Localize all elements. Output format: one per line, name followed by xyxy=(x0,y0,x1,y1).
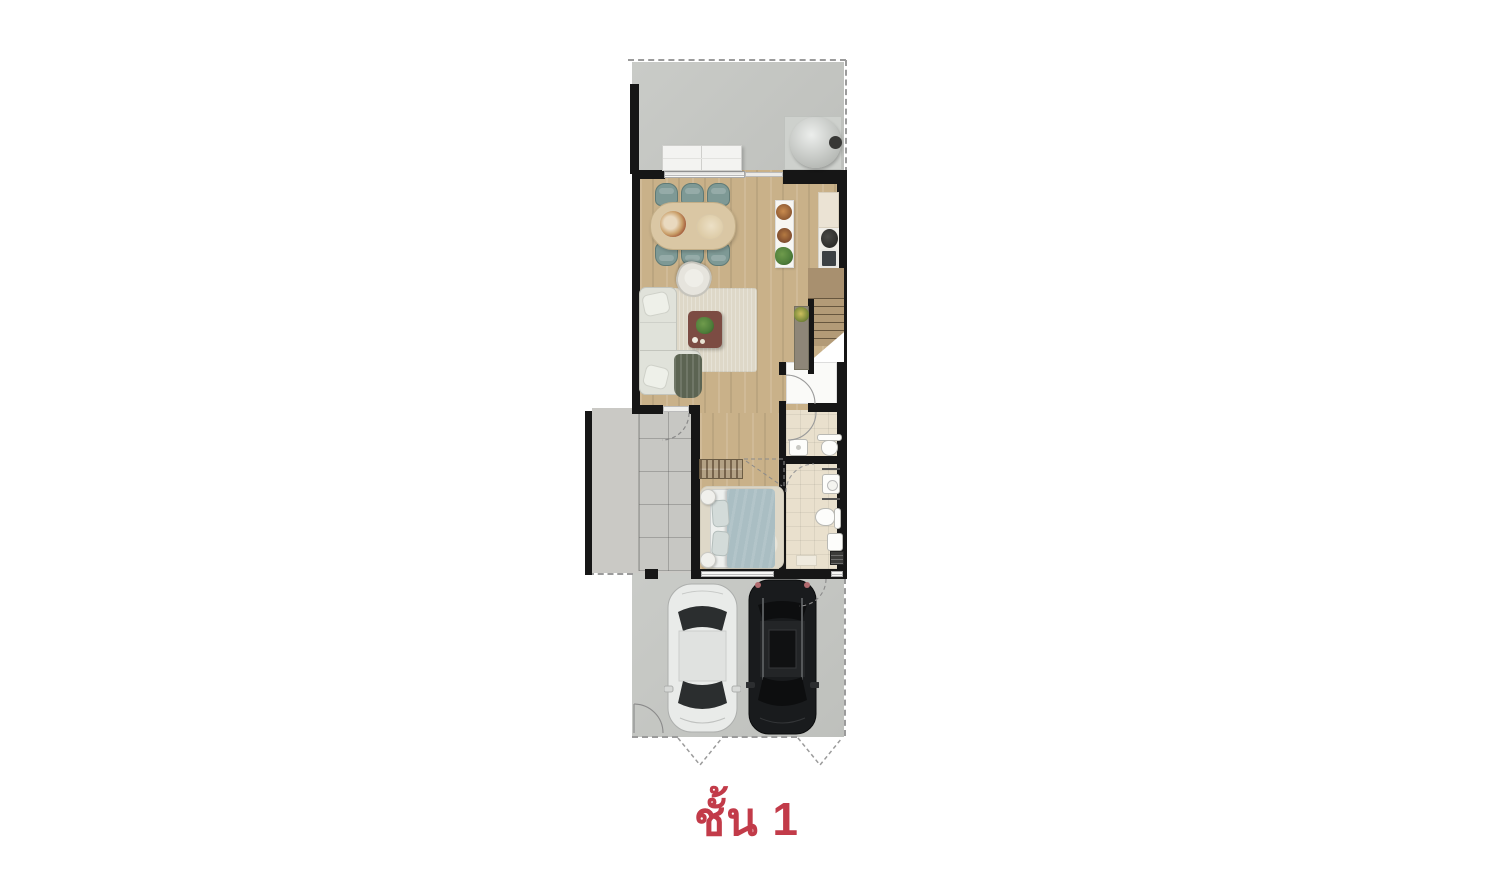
powder-room-washbasin xyxy=(789,439,808,456)
wall-top-right-corner xyxy=(783,170,844,184)
armchair-seat xyxy=(682,267,706,290)
wall-terrace-left xyxy=(630,84,639,174)
boundary-line-garage-right xyxy=(844,578,846,736)
wall-hall-left xyxy=(691,413,700,579)
powder-room-toilet-bowl xyxy=(821,440,838,456)
yard-door-threshold xyxy=(663,406,689,412)
washbasin-drain xyxy=(796,445,801,450)
double-bed-duvet xyxy=(727,489,775,568)
bedside-table xyxy=(700,489,716,505)
bathroom-vanity xyxy=(822,474,840,494)
service-yard-paving xyxy=(638,408,699,571)
bathroom-window xyxy=(831,571,843,577)
floor-plan-page: ชั้น 1 xyxy=(0,0,1493,873)
serving-plate xyxy=(696,214,724,240)
boundary-line-terrace-right xyxy=(845,60,847,173)
towel-bar xyxy=(822,468,840,470)
wall-garage-stub xyxy=(645,569,658,579)
outdoor-bench xyxy=(662,145,742,171)
food-tray xyxy=(776,204,792,220)
serving-plate xyxy=(659,210,687,238)
bench-divider xyxy=(663,158,741,159)
water-tank-cap xyxy=(829,136,842,149)
shower-cabinet xyxy=(827,533,843,551)
terrace-door-threshold xyxy=(745,172,783,177)
sofa-throw-blanket xyxy=(674,354,702,398)
towel-bar xyxy=(822,498,840,500)
stair-landing xyxy=(808,268,844,299)
driveway-entry-arrow xyxy=(796,736,844,768)
console-plant xyxy=(794,307,809,322)
candle xyxy=(692,337,698,343)
driveway-entry-arrow xyxy=(676,736,724,768)
wall-understair-left-upper xyxy=(779,362,786,375)
boundary-line-yard-bottom xyxy=(588,573,633,575)
boundary-line-garage-bottom-mid xyxy=(722,736,797,738)
food-tray xyxy=(777,228,792,243)
wall-yard-left xyxy=(585,411,592,575)
bedroom-wardrobe xyxy=(699,459,743,479)
garage-floor xyxy=(632,573,844,737)
bed-pillow xyxy=(711,499,730,527)
bedside-table xyxy=(700,552,716,568)
coffee-table-plant xyxy=(696,317,714,334)
bath-mat xyxy=(796,555,817,566)
boundary-line-garage-bottom-left xyxy=(632,736,678,738)
terrace-window xyxy=(664,171,745,178)
boundary-line-top xyxy=(628,59,846,61)
island-plant xyxy=(775,247,793,265)
wall-understair-bottom xyxy=(808,403,844,412)
kitchen-sink xyxy=(820,249,838,268)
wall-powder-bath-divider xyxy=(783,456,844,464)
vanity-basin xyxy=(827,480,838,491)
candle xyxy=(700,339,705,344)
floor-title: ชั้น 1 xyxy=(0,783,1493,856)
wall-living-bottom-a xyxy=(632,405,663,414)
refrigerator xyxy=(818,192,839,228)
bedroom-window xyxy=(701,571,774,577)
shower-drain xyxy=(830,551,844,565)
bathroom-toilet-tank xyxy=(834,508,841,529)
bed-pillow xyxy=(711,530,730,556)
cooktop xyxy=(821,229,838,248)
bathroom-toilet-bowl xyxy=(815,508,835,526)
